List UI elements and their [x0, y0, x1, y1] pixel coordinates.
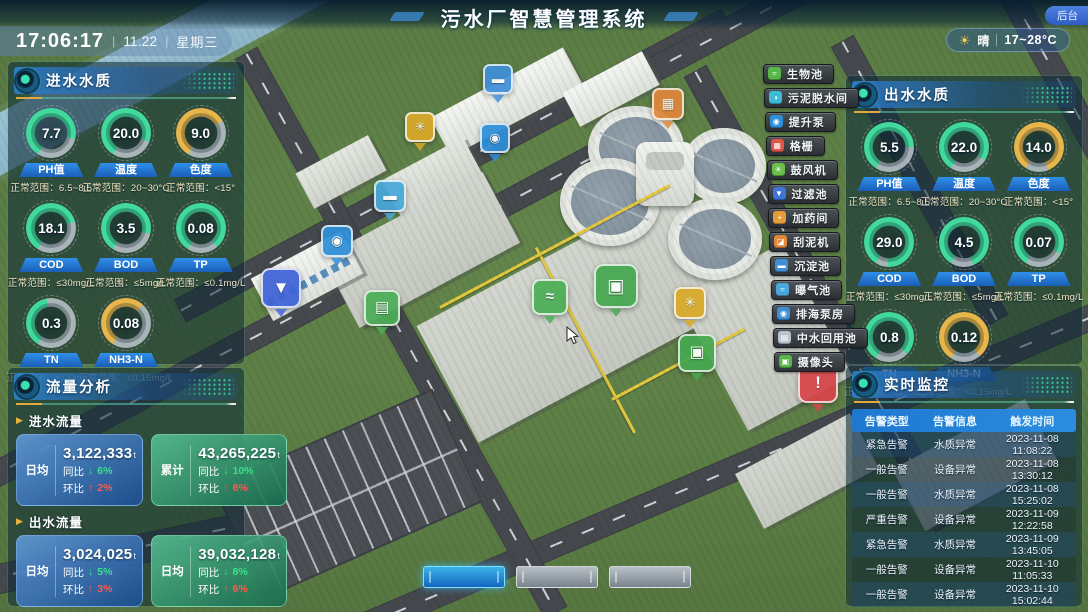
- alarm-type: 严重告警: [852, 512, 921, 527]
- gauge-inlet-temp: 20.0 温度 正常范围：20~30°C: [89, 105, 164, 194]
- weather-bar: ☀ 晴 17~28°C: [946, 28, 1070, 52]
- gauge-label: 色度: [1007, 177, 1071, 191]
- alarm-table-header: 告警类型 告警信息 触发时间: [852, 409, 1076, 432]
- marker-glyph-icon: ▬: [383, 189, 396, 202]
- mouse-cursor: [566, 326, 580, 345]
- alarm-table-body: 紧急告警 水质异常 2023-11-08 11:08:22 一般告警 设备异常 …: [852, 432, 1076, 607]
- btn-energy-stats[interactable]: [516, 566, 598, 588]
- legend-icon: ▤: [778, 331, 791, 344]
- legend-icon: ◉: [770, 115, 783, 128]
- gauge-inlet-cod: 18.1 COD 正常范围：≤30mg/L: [14, 200, 89, 289]
- grille-icon[interactable]: ▦ 格栅: [766, 136, 825, 156]
- flow-card-label: 累计: [160, 462, 184, 478]
- marker-glyph-icon: ◉: [490, 132, 501, 145]
- lift-pump-icon[interactable]: ◉ 提升泵: [765, 112, 836, 132]
- yoy-stat: 同比↓8%: [198, 565, 280, 580]
- alarm-time: 2023-11-09 12:22:58: [989, 508, 1076, 532]
- alarm-row: 一般告警 设备异常 2023-11-08 13:30:12: [852, 457, 1076, 482]
- alarm-time: 2023-11-10 15:02:44: [989, 583, 1076, 607]
- flow-card-label: 日均: [160, 563, 184, 579]
- flow-value: 3,122,333t: [63, 445, 136, 462]
- gauge-ring: 9.0: [173, 105, 229, 161]
- gauge-value: 4.5: [955, 235, 974, 250]
- gauge-ring: 0.3: [23, 295, 79, 351]
- gauge-label: TP: [169, 258, 233, 272]
- yoy-stat: 同比↓5%: [63, 565, 136, 580]
- reuse-pool-marker[interactable]: ▤: [364, 290, 400, 326]
- blower-icon[interactable]: ✳ 鼓风机: [767, 160, 838, 180]
- gauge-normal-range: 正常范围：≤5mg/L: [85, 275, 166, 289]
- panel-underline: [854, 401, 1074, 403]
- triangle-right-icon: ▶: [16, 517, 23, 526]
- alarm-type: 一般告警: [852, 587, 921, 602]
- gauge-ring: 4.5: [936, 214, 992, 270]
- outlet-quality-panel: 出水水质 5.5 PH值 正常范围：6.5~8.5 22.0 温度 正常范围：2…: [846, 76, 1082, 364]
- gauge-value: 14.0: [1026, 140, 1052, 155]
- gauge-ring: 0.08: [98, 295, 154, 351]
- alarm-type: 紧急告警: [852, 437, 921, 452]
- alarm-time: 2023-11-08 13:30:12: [989, 458, 1076, 482]
- mom-stat: 环比↑2%: [63, 481, 136, 496]
- gauge-ring: 29.0: [861, 214, 917, 270]
- alarm-type: 一般告警: [852, 462, 921, 477]
- panel-header: 进水水质: [14, 67, 238, 94]
- gauge-ring: 18.1: [23, 200, 79, 256]
- reuse-pool-icon[interactable]: ▤ 中水回用池: [773, 328, 868, 348]
- panel-orb-icon: [854, 374, 876, 396]
- gauge-value: 0.08: [188, 221, 214, 236]
- yoy-stat: 同比↓6%: [63, 464, 136, 479]
- marker-glyph-icon: ▤: [375, 300, 389, 315]
- legend-icon: ◑: [769, 91, 782, 104]
- gauge-outlet-bod: 4.5 BOD 正常范围：≤5mg/L: [927, 214, 1002, 303]
- filter-pool-icon[interactable]: ▼ 过滤池: [768, 184, 839, 204]
- alarm-row: 紧急告警 水质异常 2023-11-09 13:45:05: [852, 532, 1076, 557]
- inlet-quality-panel: 进水水质 7.7 PH值 正常范围：6.5~8.5 20.0 温度 正常范围：2…: [8, 62, 244, 364]
- alarm-info: 设备异常: [921, 562, 988, 577]
- gauge-value: 3.5: [117, 221, 136, 236]
- inflow-subheader: ▶ 进水流量: [16, 411, 236, 430]
- gauge-normal-range: 正常范围：≤5mg/L: [923, 289, 1004, 303]
- clarifier-tank: [682, 128, 766, 204]
- legend-label: 过滤池: [792, 186, 828, 202]
- triangle-right-icon: ▶: [16, 416, 23, 425]
- gauge-ring: 0.8: [861, 309, 917, 365]
- gauge-value: 0.8: [880, 330, 899, 345]
- alarm-time: 2023-11-08 15:25:02: [989, 483, 1076, 507]
- camera-marker[interactable]: ▣: [678, 334, 716, 372]
- down-arrow-icon: ↓: [88, 465, 93, 477]
- dashboard-root: ▬ ▦ ✳ ◉ ▬ ◉ ▼ ▤ ≈ ▣ ✳ ▣ ! 污水厂智慧管理系统 17:0…: [0, 0, 1088, 612]
- legend-label: 中水回用池: [797, 330, 857, 346]
- flow-unit: t: [277, 551, 280, 561]
- panel-orb-icon: [16, 376, 38, 398]
- alarm-time: 2023-11-10 11:05:33: [989, 558, 1076, 582]
- backend-button[interactable]: 后台: [1045, 6, 1088, 25]
- gauge-normal-range: 正常范围：<15°: [1004, 194, 1073, 208]
- panel-underline: [16, 403, 236, 405]
- legend-label: 提升泵: [789, 114, 825, 130]
- panel-title: 进水水质: [46, 70, 112, 91]
- gauge-value: 5.5: [880, 140, 899, 155]
- gauge-normal-range: 正常范围：≤0.1mg/L: [994, 289, 1084, 303]
- gauge-outlet-temp: 22.0 温度 正常范围：20~30°C: [927, 119, 1002, 208]
- gauge-value: 18.1: [38, 221, 64, 236]
- legend-label: 沉淀池: [794, 258, 830, 274]
- alarm-info: 设备异常: [921, 512, 988, 527]
- realtime-monitor-panel: 实时监控 告警类型 告警信息 触发时间 紧急告警 水质异常 2023-11-08…: [846, 366, 1082, 606]
- gauge-ring: 0.12: [936, 309, 992, 365]
- marker-glyph-icon: ▦: [662, 97, 675, 110]
- flow-unit: t: [133, 551, 136, 561]
- flow-card-values: 3,024,025t 同比↓5% 环比↑3%: [55, 546, 136, 597]
- temperature-range: 17~28°C: [1004, 33, 1057, 47]
- flow-value: 3,024,025t: [63, 546, 136, 563]
- up-arrow-icon: ↑: [223, 583, 228, 595]
- gauge-ring: 0.08: [173, 200, 229, 256]
- legend-icon: ✳: [772, 163, 785, 176]
- mom-stat: 环比↑6%: [198, 481, 280, 496]
- gauge-label: BOD: [94, 258, 158, 272]
- gauge-label: TP: [1007, 272, 1071, 286]
- down-arrow-icon: ↓: [88, 566, 93, 578]
- facility-legend: ≈ 生物池 ◑ 污泥脱水间 ◉ 提升泵 ▦ 格栅 ✳ 鼓风机 ▼ 过滤池 + 加…: [763, 64, 868, 372]
- panel-title: 实时监控: [884, 374, 950, 395]
- alarm-row: 一般告警 设备异常 2023-11-10 15:02:44: [852, 582, 1076, 607]
- marker-glyph-icon: ▼: [273, 280, 290, 297]
- marker-glyph-icon: ▣: [607, 277, 624, 295]
- gauge-normal-range: 正常范围：20~30°C: [82, 180, 169, 194]
- alarm-time: 2023-11-09 13:45:05: [989, 533, 1076, 557]
- legend-label: 格栅: [790, 138, 814, 154]
- bio-pool-icon[interactable]: ≈ 生物池: [763, 64, 834, 84]
- up-arrow-icon: ↑: [88, 583, 93, 595]
- filter-pool-marker[interactable]: ▼: [261, 268, 301, 308]
- down-arrow-icon: ↓: [223, 465, 228, 477]
- flow-unit: t: [133, 450, 136, 460]
- panel-orb-icon: [16, 70, 38, 92]
- gauge-value: 29.0: [876, 235, 902, 250]
- gauge-outlet-tp: 0.07 TP 正常范围：≤0.1mg/L: [1001, 214, 1076, 303]
- down-arrow-icon: ↓: [223, 566, 228, 578]
- outflow-subheader: ▶ 出水流量: [16, 512, 236, 531]
- flow-value: 43,265,225t: [198, 445, 280, 462]
- gauge-value: 0.07: [1026, 235, 1052, 250]
- card-inflow-total: 累计 43,265,225t 同比↓10% 环比↑6%: [151, 434, 287, 506]
- yoy-stat: 同比↓10%: [198, 464, 280, 479]
- legend-label: 生物池: [787, 66, 823, 82]
- legend-icon: ▦: [771, 139, 784, 152]
- gauge-ring: 3.5: [98, 200, 154, 256]
- gauge-label: 温度: [932, 177, 996, 191]
- sedimentation-marker[interactable]: ▬: [483, 64, 513, 94]
- footer-buttons: [423, 566, 691, 588]
- legend-icon: ≈: [768, 67, 781, 80]
- gauge-inlet-color: 9.0 色度 正常范围：<15°: [163, 105, 238, 194]
- col-alarm-time: 触发时间: [989, 413, 1076, 429]
- gauge-normal-range: 正常范围：≤0.1mg/L: [156, 275, 246, 289]
- legend-label: 曝气池: [795, 282, 831, 298]
- panel-header: 实时监控: [852, 371, 1076, 398]
- blower-marker[interactable]: ✳: [674, 287, 706, 319]
- legend-icon: ◪: [774, 235, 787, 248]
- divider: |: [165, 34, 168, 48]
- alarm-info: 水质异常: [921, 487, 988, 502]
- gauge-value: 7.7: [42, 126, 61, 141]
- gauge-normal-range: 正常范围：<15°: [166, 180, 235, 194]
- dosing-room-icon[interactable]: + 加药间: [768, 208, 839, 228]
- alarm-type: 一般告警: [852, 562, 921, 577]
- legend-icon: +: [773, 211, 786, 224]
- panel-title: 流量分析: [46, 376, 112, 397]
- camera-marker[interactable]: ▣: [594, 264, 638, 308]
- divider: [996, 34, 997, 46]
- flow-card-label: 日均: [25, 462, 49, 478]
- btn-water-quality[interactable]: [423, 566, 505, 588]
- gauge-label: BOD: [932, 272, 996, 286]
- aeration-pool-icon[interactable]: ≈ 曝气池: [771, 280, 842, 300]
- flow-analysis-panel: 流量分析 ▶ 进水流量 日均 3,122,333t 同比↓6% 环比↑2% 累计…: [8, 368, 244, 606]
- sedimentation-icon[interactable]: ▬ 沉淀池: [770, 256, 841, 276]
- legend-icon: ▼: [773, 187, 786, 200]
- gauge-normal-range: 正常范围：6.5~8.5: [10, 180, 92, 194]
- alarm-row: 紧急告警 水质异常 2023-11-08 11:08:22: [852, 432, 1076, 457]
- gauge-ring: 22.0: [936, 119, 992, 175]
- outflow-cards: 日均 3,024,025t 同比↓5% 环比↑3% 日均 39,032,128t…: [14, 535, 238, 607]
- bio-pool-marker[interactable]: ≈: [532, 279, 568, 315]
- marker-glyph-icon: ✳: [415, 121, 426, 134]
- sea-pump-house-icon[interactable]: ◉ 排海泵房: [772, 304, 855, 324]
- legend-label: 鼓风机: [791, 162, 827, 178]
- up-arrow-icon: ↑: [223, 482, 228, 494]
- gauge-ring: 5.5: [861, 119, 917, 175]
- legend-icon: ≈: [776, 283, 789, 296]
- alarm-time: 2023-11-08 11:08:22: [989, 433, 1076, 457]
- col-alarm-type: 告警类型: [852, 413, 921, 429]
- alarm-row: 一般告警 水质异常 2023-11-08 15:25:02: [852, 482, 1076, 507]
- gauge-value: 0.12: [951, 330, 977, 345]
- alarm-row: 一般告警 设备异常 2023-11-10 11:05:33: [852, 557, 1076, 582]
- marker-glyph-icon: ✳: [684, 296, 695, 309]
- legend-icon: ▣: [779, 355, 792, 368]
- panel-header: 流量分析: [14, 373, 238, 400]
- alarm-row: 严重告警 设备异常 2023-11-09 12:22:58: [852, 507, 1076, 532]
- col-alarm-info: 告警信息: [921, 413, 988, 429]
- panel-title: 出水水质: [884, 84, 950, 105]
- gauge-normal-range: 正常范围：≤30mg/L: [8, 275, 95, 289]
- flow-unit: t: [277, 450, 280, 460]
- gauge-label: NH3-N: [94, 353, 158, 367]
- outlet-gauges: 5.5 PH值 正常范围：6.5~8.5 22.0 温度 正常范围：20~30°…: [852, 113, 1076, 404]
- up-arrow-icon: ↑: [88, 482, 93, 494]
- gauge-label: 色度: [169, 163, 233, 177]
- marker-glyph-icon: ▣: [689, 345, 704, 361]
- flow-card-label: 日均: [25, 563, 49, 579]
- marker-glyph-icon: !: [815, 375, 821, 392]
- gauge-label: COD: [19, 258, 83, 272]
- panel-header: 出水水质: [852, 81, 1076, 108]
- alarm-info: 设备异常: [921, 462, 988, 477]
- legend-label: 刮泥机: [793, 234, 829, 250]
- mom-stat: 环比↑6%: [198, 582, 280, 597]
- gauge-value: 9.0: [191, 126, 210, 141]
- clarifier-tank: [668, 198, 762, 280]
- divider: |: [112, 34, 115, 48]
- clock-weekday: 星期三: [176, 32, 218, 51]
- gauge-label: 温度: [94, 163, 158, 177]
- mom-stat: 环比↑3%: [63, 582, 136, 597]
- gauge-outlet-color: 14.0 色度 正常范围：<15°: [1001, 119, 1076, 208]
- inlet-gauges: 7.7 PH值 正常范围：6.5~8.5 20.0 温度 正常范围：20~30°…: [14, 99, 238, 390]
- lift-pump-marker[interactable]: ◉: [480, 123, 510, 153]
- lift-pump-marker[interactable]: ◉: [321, 225, 353, 257]
- legend-label: 污泥脱水间: [788, 90, 848, 106]
- gauge-value: 20.0: [113, 126, 139, 141]
- gauge-value: 22.0: [951, 140, 977, 155]
- alarm-type: 一般告警: [852, 487, 921, 502]
- camera-icon[interactable]: ▣ 摄像头: [774, 352, 845, 372]
- sun-icon: ☀: [959, 34, 971, 47]
- legend-label: 排海泵房: [796, 306, 844, 322]
- card-outflow-daily: 日均 3,024,025t 同比↓5% 环比↑3%: [16, 535, 143, 607]
- legend-icon: ▬: [775, 259, 788, 272]
- alarm-type: 紧急告警: [852, 537, 921, 552]
- gauge-ring: 14.0: [1011, 119, 1067, 175]
- inflow-cards: 日均 3,122,333t 同比↓6% 环比↑2% 累计 43,265,225t…: [14, 434, 238, 506]
- gauge-inlet-ph: 7.7 PH值 正常范围：6.5~8.5: [14, 105, 89, 194]
- flow-card-values: 43,265,225t 同比↓10% 环比↑6%: [190, 445, 280, 496]
- flow-value: 39,032,128t: [198, 546, 280, 563]
- gauge-normal-range: 正常范围：20~30°C: [920, 194, 1007, 208]
- mud-scraper-icon[interactable]: ◪ 刮泥机: [769, 232, 840, 252]
- blower-marker[interactable]: ✳: [405, 112, 435, 142]
- marker-glyph-icon: ◉: [331, 234, 343, 247]
- clock-time: 17:06:17: [16, 30, 104, 53]
- gauge-value: 0.3: [42, 316, 61, 331]
- alarm-info: 水质异常: [921, 537, 988, 552]
- clock-bar: 17:06:17 | 11.22 | 星期三: [0, 26, 232, 56]
- mud-scraper-marker[interactable]: ▦: [652, 88, 684, 120]
- gauge-inlet-bod: 3.5 BOD 正常范围：≤5mg/L: [89, 200, 164, 289]
- legend-icon: ◉: [777, 307, 790, 320]
- marker-glyph-icon: ▬: [492, 73, 505, 86]
- alarm-info: 设备异常: [921, 587, 988, 602]
- card-outflow-total: 日均 39,032,128t 同比↓8% 环比↑6%: [151, 535, 287, 607]
- gauge-label: TN: [19, 353, 83, 367]
- gauge-value: 0.08: [113, 316, 139, 331]
- gauge-ring: 7.7: [23, 105, 79, 161]
- gauge-inlet-tp: 0.08 TP 正常范围：≤0.1mg/L: [163, 200, 238, 289]
- flow-card-values: 3,122,333t 同比↓6% 环比↑2%: [55, 445, 136, 496]
- sludge-dewater-icon[interactable]: ◑ 污泥脱水间: [764, 88, 859, 108]
- flow-card-values: 39,032,128t 同比↓8% 环比↑6%: [190, 546, 280, 597]
- gauge-ring: 0.07: [1011, 214, 1067, 270]
- marker-glyph-icon: ≈: [546, 289, 554, 304]
- aeration-pool-marker[interactable]: ▬: [374, 180, 406, 212]
- legend-label: 加药间: [792, 210, 828, 226]
- gauge-ring: 20.0: [98, 105, 154, 161]
- legend-label: 摄像头: [798, 354, 834, 370]
- gauge-label: PH值: [19, 163, 83, 177]
- card-inflow-daily: 日均 3,122,333t 同比↓6% 环比↑2%: [16, 434, 143, 506]
- alarm-info: 水质异常: [921, 437, 988, 452]
- clock-date: 11.22: [123, 33, 157, 49]
- btn-scada-monitor[interactable]: [609, 566, 691, 588]
- weather-condition: 晴: [977, 32, 989, 49]
